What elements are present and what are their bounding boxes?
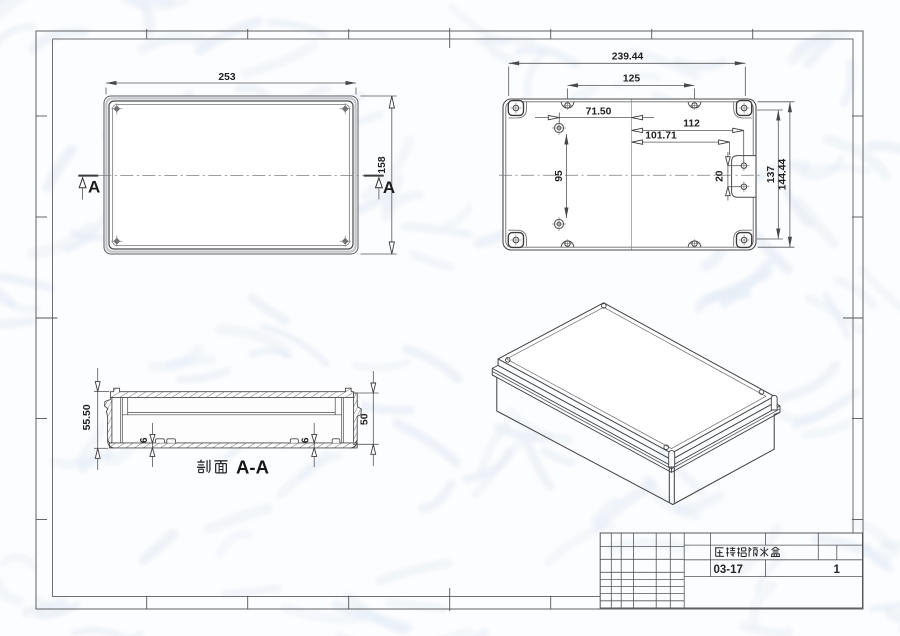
svg-text:239.44: 239.44 <box>612 52 644 63</box>
svg-text:137: 137 <box>766 166 777 183</box>
svg-text:A: A <box>383 178 395 197</box>
svg-text:1: 1 <box>834 564 841 576</box>
svg-text:125: 125 <box>623 74 640 85</box>
svg-text:50: 50 <box>360 413 371 425</box>
svg-text:158: 158 <box>377 156 388 173</box>
svg-text:6: 6 <box>139 437 150 443</box>
svg-text:144.44: 144.44 <box>778 158 789 190</box>
svg-text:71.50: 71.50 <box>586 107 612 118</box>
svg-text:55.50: 55.50 <box>82 404 93 430</box>
svg-text:6: 6 <box>301 437 312 443</box>
svg-text:112: 112 <box>683 119 700 130</box>
svg-text:A-A: A-A <box>236 456 269 477</box>
svg-text:253: 253 <box>218 72 235 83</box>
svg-text:20: 20 <box>714 170 725 182</box>
svg-text:101.71: 101.71 <box>645 130 677 141</box>
svg-text:95: 95 <box>554 170 565 182</box>
svg-text:A: A <box>88 178 100 197</box>
svg-text:03-17: 03-17 <box>714 564 743 576</box>
